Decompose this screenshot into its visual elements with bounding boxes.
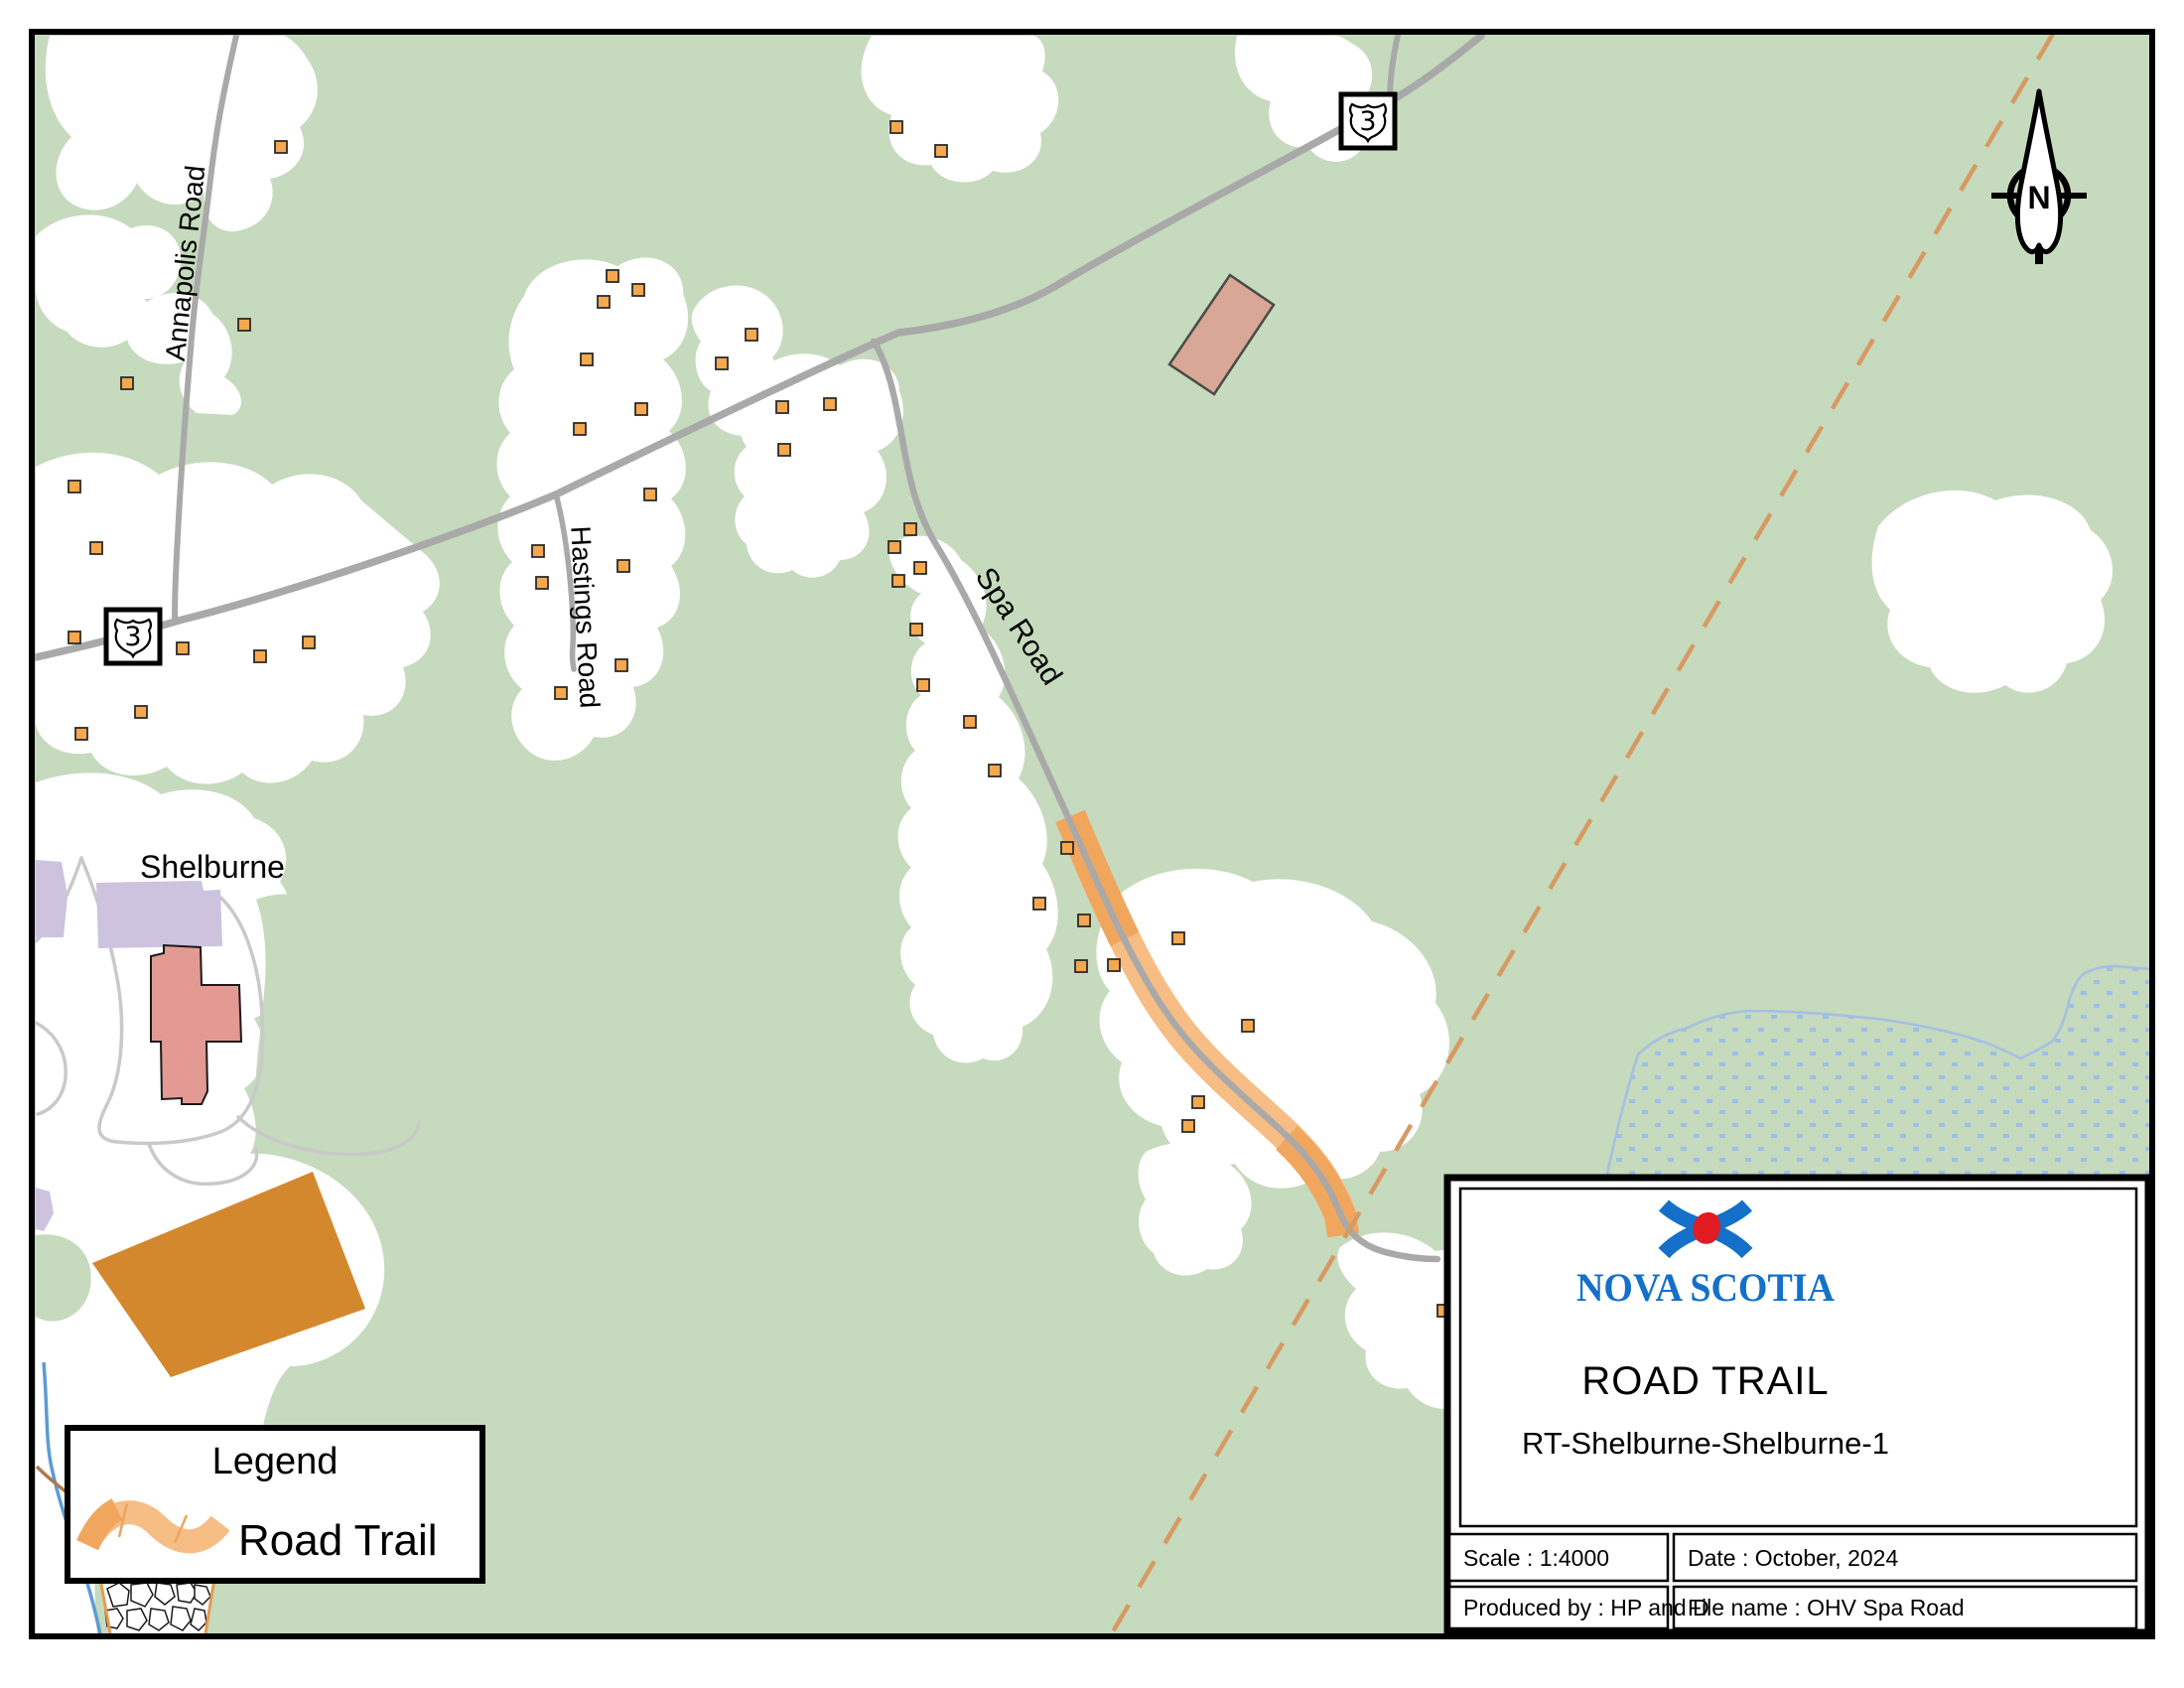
file-name-text: File name : OHV Spa Road [1688,1595,1965,1620]
map-subtitle: RT-Shelburne-Shelburne-1 [1522,1426,1889,1461]
building-marker [238,319,250,331]
building-marker [1075,960,1087,972]
scale-text: Scale : 1:4000 [1463,1545,1609,1571]
building-marker [888,541,900,553]
building-marker [275,141,287,153]
org-wordmark: NOVA SCOTIA [1576,1265,1835,1310]
building-marker [617,560,629,572]
legend-box: Legend Road Trail [68,1428,482,1581]
building-marker [536,577,548,589]
building-marker [598,296,610,308]
building-marker [555,687,567,699]
building-marker [632,284,644,296]
town-polygon [36,860,68,937]
building-marker [824,398,836,410]
building-marker [68,632,80,643]
building-marker [1242,1020,1254,1032]
building-marker [1172,932,1184,944]
building-marker [615,659,627,671]
building-marker [716,357,728,369]
building-marker [121,377,133,389]
map-page: Shelburne Annapolis Road Hastings Road S… [0,0,2184,1688]
building-marker [1033,898,1045,910]
building-marker [746,329,757,341]
building-marker [303,636,315,648]
building-marker [989,765,1001,776]
town-polygon [96,881,222,948]
highway-shield: 3 [1341,94,1395,148]
north-letter: N [2027,180,2050,215]
title-block: NOVA SCOTIA ROAD TRAIL RT-Shelburne-Shel… [1447,1178,2148,1632]
building-marker [644,489,656,500]
building-marker [778,444,790,456]
building-marker [574,423,586,435]
building-marker [68,481,80,492]
building-marker [635,403,647,415]
building-marker [904,523,916,535]
building-marker [914,562,926,574]
legend-title: Legend [212,1441,339,1482]
map-canvas: Shelburne Annapolis Road Hastings Road S… [34,34,2150,1634]
building-marker [581,353,593,365]
map-title: ROAD TRAIL [1581,1359,1829,1403]
building-marker [776,401,788,413]
building-marker [135,706,147,718]
building-marker [1078,914,1090,926]
building-marker [254,650,266,662]
building-marker [1182,1120,1194,1132]
building-marker [892,575,904,587]
date-text: Date : October, 2024 [1688,1545,1898,1571]
building-marker [910,624,922,635]
building-marker [1061,842,1073,854]
town-label: Shelburne [140,849,285,885]
building-marker [917,679,929,691]
building-marker [890,121,902,133]
building-marker [1192,1096,1204,1108]
produced-by-text: Produced by : HP and D [1463,1595,1709,1620]
building-marker [964,716,976,728]
highway-shield: 3 [106,610,160,663]
gravel-area [100,1579,214,1633]
route-number: 3 [1359,106,1376,137]
building-marker [607,270,618,282]
building-marker [532,545,544,557]
building-marker [90,542,102,554]
building-marker [1108,959,1120,971]
building-marker [935,145,947,157]
building-marker [75,728,87,740]
road-trail-map: Shelburne Annapolis Road Hastings Road S… [0,0,2184,1688]
building-marker [177,642,189,654]
route-number: 3 [124,622,141,652]
legend-item-label: Road Trail [238,1516,438,1565]
